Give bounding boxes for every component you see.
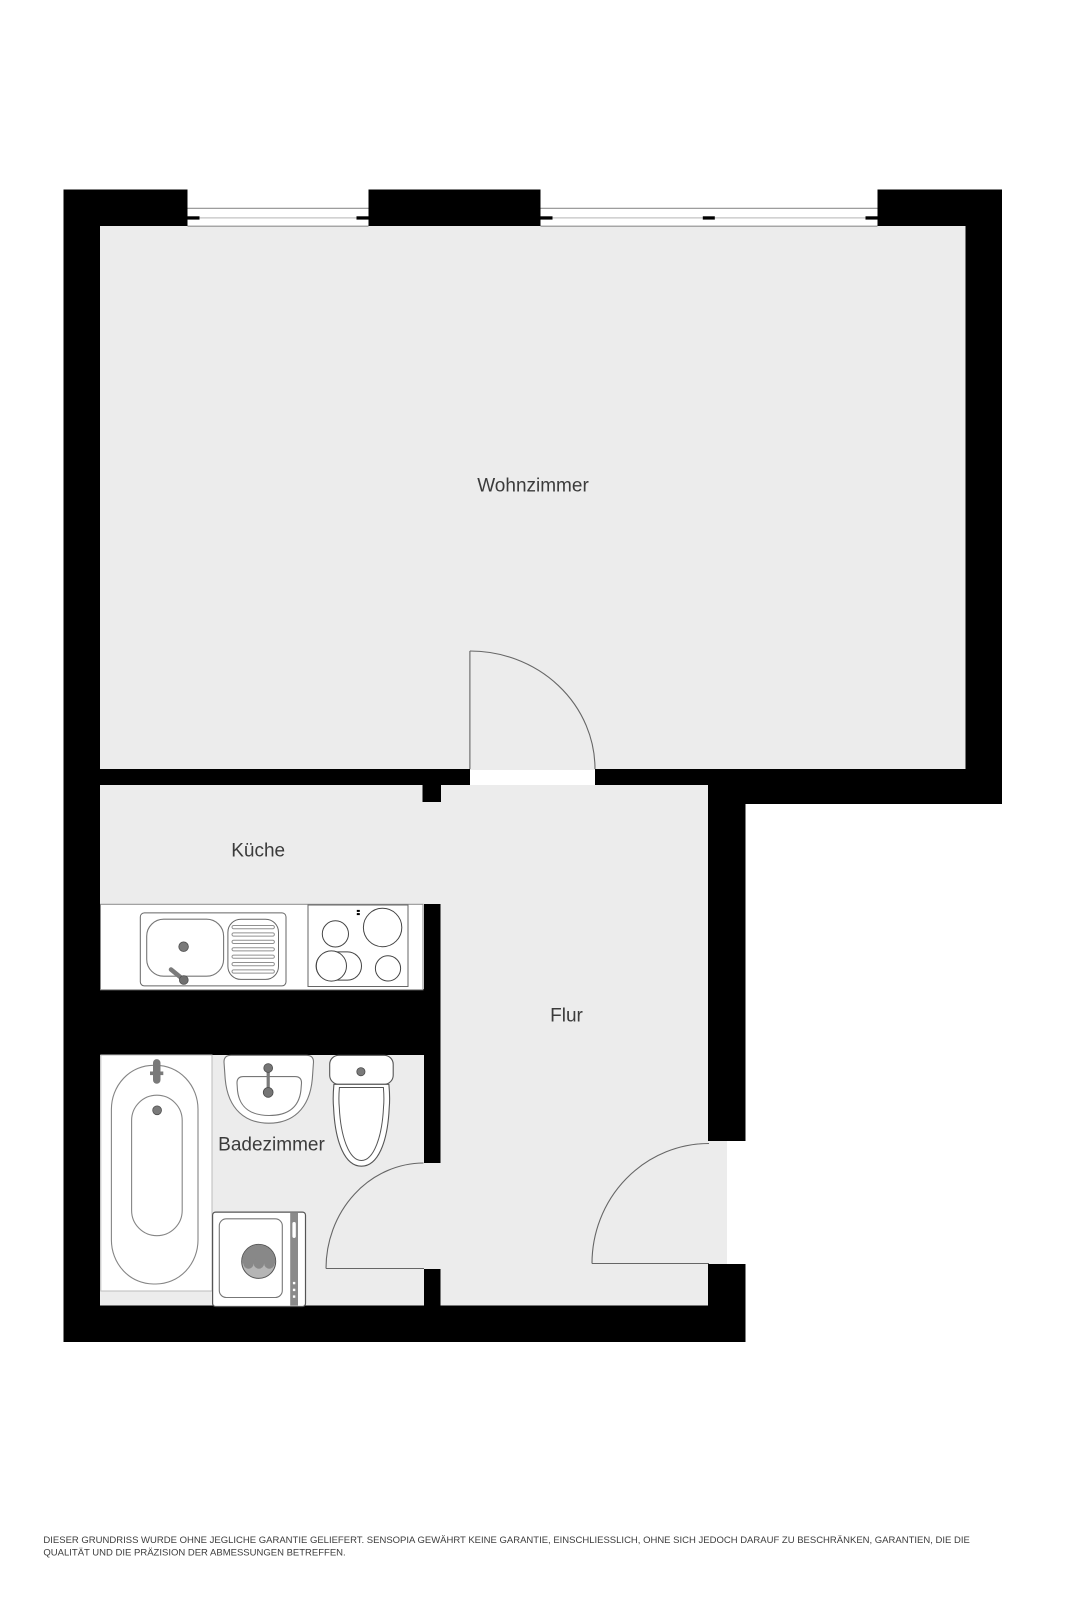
svg-text:Flur: Flur: [550, 1005, 583, 1026]
svg-text:QUALITÄT UND DIE PRÄZISION DER: QUALITÄT UND DIE PRÄZISION DER ABMESSUNG…: [43, 1548, 345, 1559]
svg-text:Küche: Küche: [231, 841, 285, 862]
svg-text:Wohnzimmer: Wohnzimmer: [477, 475, 589, 496]
svg-text:Badezimmer: Badezimmer: [218, 1134, 325, 1155]
svg-text:DIESER GRUNDRISS WURDE OHNE JE: DIESER GRUNDRISS WURDE OHNE JEGLICHE GAR…: [43, 1535, 969, 1546]
